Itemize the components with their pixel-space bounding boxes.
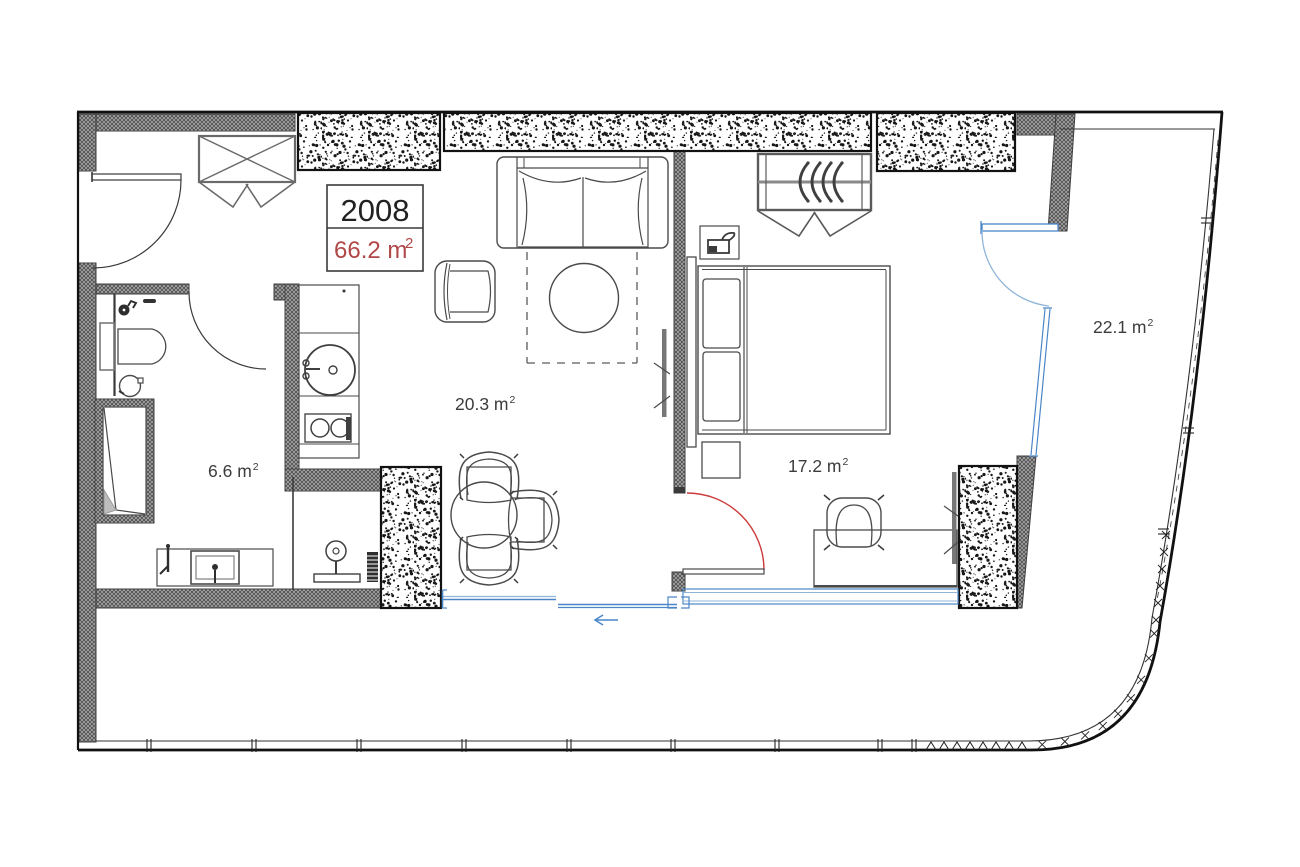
svg-text:66.2 m: 66.2 m [334,237,407,264]
svg-text:6.6 m: 6.6 m [208,461,252,481]
svg-text:2008: 2008 [341,193,410,228]
svg-text:2: 2 [405,235,413,252]
svg-text:2: 2 [1147,317,1153,329]
svg-text:2: 2 [842,456,848,468]
svg-text:2: 2 [253,461,259,473]
svg-text:2: 2 [509,394,515,406]
svg-text:17.2 m: 17.2 m [788,456,842,476]
svg-text:20.3 m: 20.3 m [455,394,509,414]
svg-text:22.1 m: 22.1 m [1093,317,1147,337]
